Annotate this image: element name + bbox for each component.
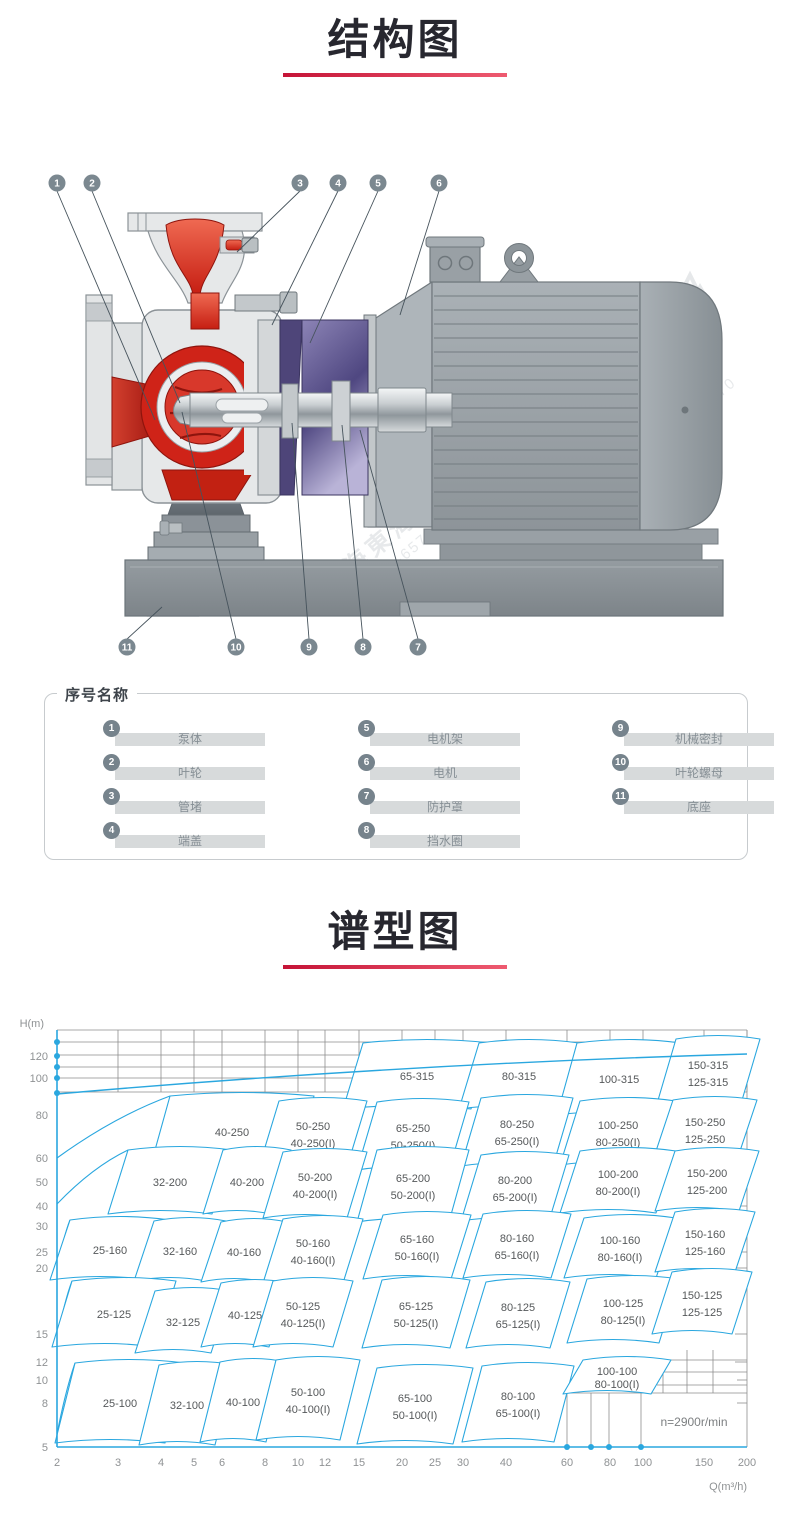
legend-item-number-7: 7	[358, 788, 375, 805]
svg-text:80: 80	[604, 1457, 616, 1469]
legend-item-label-5: 电机架	[370, 733, 520, 746]
svg-text:65-125(I): 65-125(I)	[496, 1319, 541, 1331]
svg-text:125-125: 125-125	[682, 1307, 722, 1319]
callout-number: 9	[306, 643, 312, 654]
svg-text:50-200: 50-200	[298, 1172, 332, 1184]
svg-text:32-160: 32-160	[163, 1246, 197, 1258]
callout-number: 10	[230, 643, 242, 654]
region-80-100: 80-10065-100(I)	[462, 1363, 574, 1443]
svg-text:10: 10	[292, 1457, 304, 1469]
spectrum-title: 谱型图	[0, 908, 790, 956]
svg-text:125-250: 125-250	[685, 1134, 725, 1146]
svg-text:100-125: 100-125	[603, 1298, 643, 1310]
svg-text:5: 5	[42, 1442, 48, 1454]
svg-text:50-250: 50-250	[296, 1121, 330, 1133]
drain-plug	[160, 521, 182, 535]
svg-text:40-250: 40-250	[215, 1127, 249, 1139]
motor-end-cap	[640, 282, 722, 530]
svg-text:15: 15	[353, 1457, 365, 1469]
svg-text:65-200(I): 65-200(I)	[493, 1192, 538, 1204]
callout-number: 8	[360, 643, 366, 654]
svg-text:65-250: 65-250	[396, 1123, 430, 1135]
svg-text:80-200(I): 80-200(I)	[596, 1186, 641, 1198]
region-65-100: 65-10050-100(I)	[357, 1365, 473, 1445]
y-axis-title: H(m)	[20, 1018, 44, 1030]
svg-text:65-315: 65-315	[400, 1071, 434, 1083]
svg-text:40-200: 40-200	[230, 1177, 264, 1189]
legend-title: 序号名称	[57, 684, 137, 705]
lifting-eye	[500, 244, 538, 283]
svg-text:40: 40	[36, 1201, 48, 1213]
svg-text:80-125(I): 80-125(I)	[601, 1315, 646, 1327]
speed-annotation: n=2900r/min	[660, 1415, 727, 1429]
svg-text:100-200: 100-200	[598, 1169, 638, 1181]
svg-text:80: 80	[36, 1110, 48, 1122]
svg-text:80-160(I): 80-160(I)	[598, 1252, 643, 1264]
shaft-keyway	[216, 399, 268, 411]
svg-text:150-200: 150-200	[687, 1168, 727, 1180]
callout-number: 2	[89, 179, 95, 190]
svg-text:65-100(I): 65-100(I)	[496, 1408, 541, 1420]
svg-text:150-125: 150-125	[682, 1290, 722, 1302]
svg-text:50-100(I): 50-100(I)	[393, 1410, 438, 1422]
structure-title-underline	[283, 73, 507, 77]
callout-4: 4	[272, 175, 347, 326]
svg-text:80-100(I): 80-100(I)	[595, 1379, 640, 1391]
svg-text:100: 100	[30, 1073, 48, 1085]
svg-text:100-250: 100-250	[598, 1120, 638, 1132]
svg-text:125-315: 125-315	[688, 1077, 728, 1089]
svg-text:12: 12	[319, 1457, 331, 1469]
region-65-160: 65-16050-160(I)	[363, 1212, 471, 1280]
legend-item-label-8: 挡水圈	[370, 835, 520, 848]
x-axis-title: Q(m³/h)	[709, 1481, 747, 1493]
parts-legend: 序号名称 1泵体2叶轮3管堵4端盖5电机架6电机7防护罩8挡水圈9机械密封10叶…	[44, 693, 748, 860]
svg-text:80-200: 80-200	[498, 1175, 532, 1187]
callout-number: 3	[297, 179, 303, 190]
region-65-125: 65-12550-125(I)	[362, 1277, 470, 1349]
cover-bolt	[280, 292, 297, 313]
svg-text:50-125(I): 50-125(I)	[394, 1318, 439, 1330]
svg-text:25-100: 25-100	[103, 1398, 137, 1410]
spectrum-title-underline	[283, 965, 507, 969]
svg-text:150-315: 150-315	[688, 1060, 728, 1072]
legend-item-number-9: 9	[612, 720, 629, 737]
pump-selection-chart: 65-31580-315100-315150-315125-31540-2505…	[0, 1010, 790, 1520]
svg-text:65-100: 65-100	[398, 1393, 432, 1405]
spectrum-section-header: 谱型图	[0, 908, 790, 969]
svg-text:30: 30	[457, 1457, 469, 1469]
svg-text:25-160: 25-160	[93, 1245, 127, 1257]
callout-number: 7	[415, 643, 421, 654]
motor-cap-screw	[682, 407, 689, 414]
svg-text:80-160: 80-160	[500, 1233, 534, 1245]
svg-text:50-160(I): 50-160(I)	[395, 1251, 440, 1263]
svg-text:80-100: 80-100	[501, 1391, 535, 1403]
svg-text:2: 2	[54, 1457, 60, 1469]
svg-text:30: 30	[36, 1221, 48, 1233]
svg-text:40-125(I): 40-125(I)	[281, 1318, 326, 1330]
svg-text:25-125: 25-125	[97, 1309, 131, 1321]
callout-number: 5	[375, 179, 381, 190]
legend-item-label-7: 防护罩	[370, 801, 520, 814]
region-80-125: 80-12565-125(I)	[466, 1279, 570, 1349]
legend-item-label-9: 机械密封	[624, 733, 774, 746]
legend-item-label-4: 端盖	[115, 835, 265, 848]
svg-text:65-125: 65-125	[399, 1301, 433, 1313]
svg-text:50: 50	[36, 1177, 48, 1189]
svg-text:40: 40	[500, 1457, 512, 1469]
terminal-box	[426, 237, 484, 282]
svg-text:4: 4	[158, 1457, 164, 1469]
legend-item-number-11: 11	[612, 788, 629, 805]
svg-text:150: 150	[695, 1457, 713, 1469]
svg-text:60: 60	[36, 1153, 48, 1165]
svg-text:125-200: 125-200	[687, 1185, 727, 1197]
svg-text:15: 15	[36, 1329, 48, 1341]
legend-item-number-2: 2	[103, 754, 120, 771]
svg-text:100-315: 100-315	[599, 1074, 639, 1086]
svg-text:80-315: 80-315	[502, 1071, 536, 1083]
model-regions: 65-31580-315100-315150-315125-31540-2505…	[50, 1036, 760, 1446]
legend-item-label-11: 底座	[624, 801, 774, 814]
svg-text:65-160(I): 65-160(I)	[495, 1250, 540, 1262]
region-100-100: 100-10080-100(I)	[563, 1357, 671, 1395]
svg-text:125-160: 125-160	[685, 1246, 725, 1258]
svg-text:50-100: 50-100	[291, 1387, 325, 1399]
mechanical-seal	[282, 384, 298, 438]
svg-text:40-100: 40-100	[226, 1397, 260, 1409]
base-plate	[125, 560, 723, 616]
structure-title: 结构图	[0, 16, 790, 64]
legend-item-number-6: 6	[358, 754, 375, 771]
svg-text:65-160: 65-160	[400, 1234, 434, 1246]
svg-text:100: 100	[634, 1457, 652, 1469]
svg-text:5: 5	[191, 1457, 197, 1469]
structure-section-header: 结构图	[0, 16, 790, 77]
legend-item-label-10: 叶轮螺母	[624, 767, 774, 780]
legend-item-label-3: 管堵	[115, 801, 265, 814]
svg-text:20: 20	[396, 1457, 408, 1469]
svg-text:80-125: 80-125	[501, 1302, 535, 1314]
callout-number: 4	[335, 179, 341, 190]
svg-text:40-200(I): 40-200(I)	[293, 1189, 338, 1201]
svg-text:3: 3	[115, 1457, 121, 1469]
svg-text:25: 25	[36, 1247, 48, 1259]
svg-text:20: 20	[36, 1263, 48, 1275]
region-80-160: 80-16065-160(I)	[463, 1211, 571, 1279]
svg-text:32-100: 32-100	[170, 1400, 204, 1412]
svg-text:8: 8	[262, 1457, 268, 1469]
catalog-page: 结构图	[0, 0, 790, 1520]
svg-text:60: 60	[561, 1457, 573, 1469]
legend-item-number-8: 8	[358, 822, 375, 839]
svg-text:40-125: 40-125	[228, 1310, 262, 1322]
suction-flange	[86, 295, 112, 485]
svg-text:100-160: 100-160	[600, 1235, 640, 1247]
svg-text:50-200(I): 50-200(I)	[391, 1190, 436, 1202]
svg-text:200: 200	[738, 1457, 756, 1469]
legend-item-number-1: 1	[103, 720, 120, 737]
svg-text:8: 8	[42, 1398, 48, 1410]
legend-item-number-4: 4	[103, 822, 120, 839]
svg-text:150-250: 150-250	[685, 1117, 725, 1129]
pump-structure-diagram: 上海東海800-820-6570上海東海800-820-6570上海東海800-…	[30, 155, 760, 685]
svg-text:65-200: 65-200	[396, 1173, 430, 1185]
svg-text:40-160(I): 40-160(I)	[291, 1255, 336, 1267]
svg-text:10: 10	[36, 1375, 48, 1387]
svg-text:32-200: 32-200	[153, 1177, 187, 1189]
legend-item-number-5: 5	[358, 720, 375, 737]
svg-text:100-100: 100-100	[597, 1366, 637, 1378]
legend-item-label-1: 泵体	[115, 733, 265, 746]
svg-text:150-160: 150-160	[685, 1229, 725, 1241]
svg-text:25: 25	[429, 1457, 441, 1469]
svg-text:40-160: 40-160	[227, 1247, 261, 1259]
svg-text:12: 12	[36, 1357, 48, 1369]
legend-item-number-3: 3	[103, 788, 120, 805]
svg-text:50-125: 50-125	[286, 1301, 320, 1313]
svg-text:32-125: 32-125	[166, 1317, 200, 1329]
callout-number: 11	[122, 643, 133, 654]
motor-body	[364, 237, 722, 530]
callout-number: 1	[54, 179, 60, 190]
svg-text:40-100(I): 40-100(I)	[286, 1404, 331, 1416]
callout-number: 6	[436, 179, 442, 190]
svg-text:50-160: 50-160	[296, 1238, 330, 1250]
svg-text:120: 120	[30, 1051, 48, 1063]
slinger-ring	[332, 381, 350, 441]
svg-text:65-250(I): 65-250(I)	[495, 1136, 540, 1148]
legend-item-number-10: 10	[612, 754, 629, 771]
svg-text:80-250: 80-250	[500, 1119, 534, 1131]
legend-item-label-6: 电机	[370, 767, 520, 780]
legend-item-label-2: 叶轮	[115, 767, 265, 780]
svg-text:6: 6	[219, 1457, 225, 1469]
